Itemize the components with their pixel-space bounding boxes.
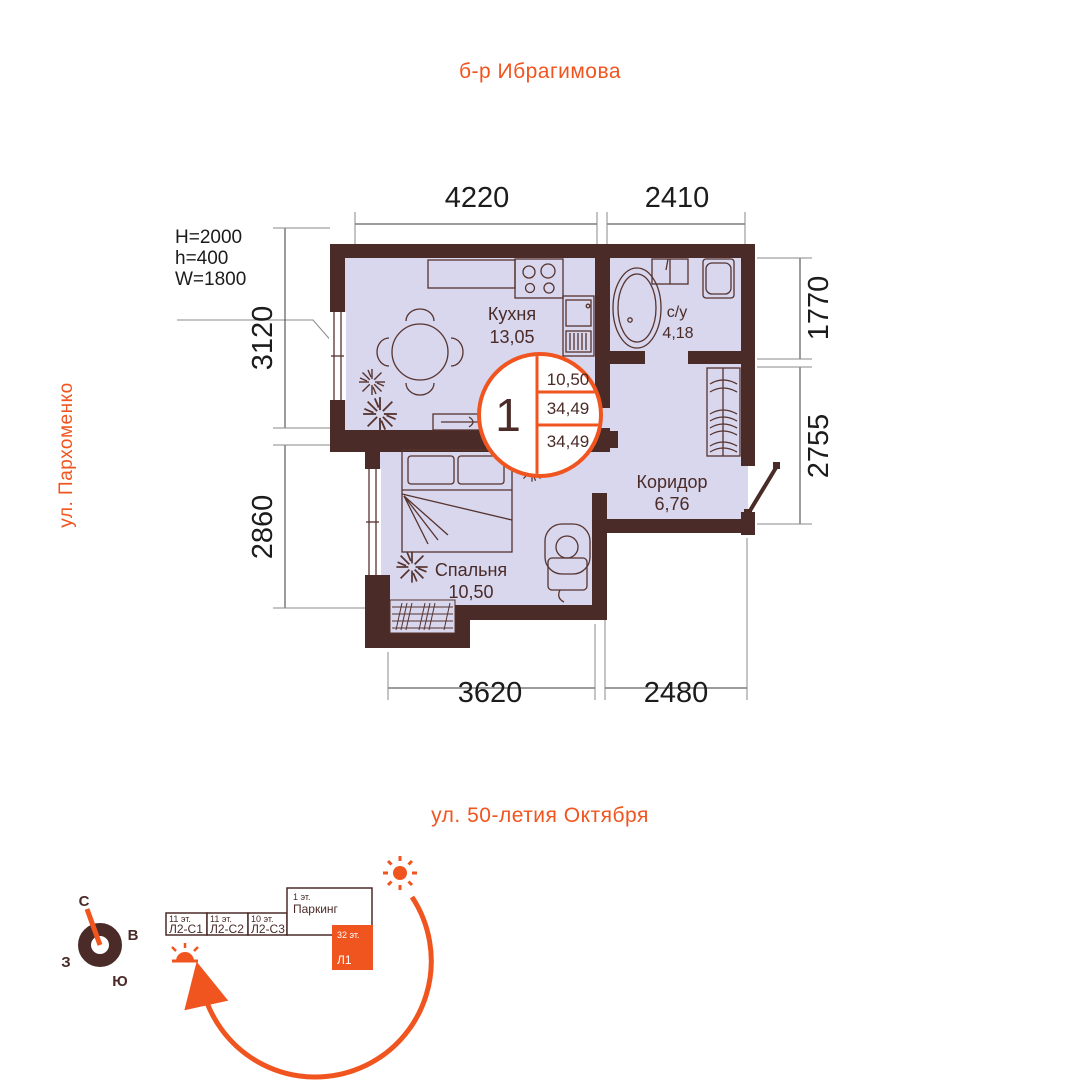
kitchen-window <box>329 312 346 400</box>
badge-total-area: 34,49 <box>547 399 590 418</box>
badge-living-area: 10,50 <box>547 370 590 389</box>
street-label-left: ул. Пархоменко <box>56 382 77 527</box>
building-scheme: 11 эт. Л2-С1 11 эт. Л2-С2 10 эт. Л2-С3 1… <box>166 888 373 970</box>
dim-left-1: 3120 <box>247 306 279 371</box>
compass-south: Ю <box>112 973 127 990</box>
bedroom-window <box>364 469 381 575</box>
dim-bottom-1: 3620 <box>458 677 523 709</box>
street-label-top: б-р Ибрагимова <box>459 60 621 83</box>
dim-bottom-2: 2480 <box>644 677 709 709</box>
kitchen-label: Кухня <box>488 304 536 324</box>
compass-east: В <box>128 927 139 944</box>
bedroom-area: 10,50 <box>448 582 493 602</box>
dim-right-2: 2755 <box>803 414 835 479</box>
corridor-area: 6,76 <box>654 494 689 514</box>
badge-room-count: 1 <box>495 389 521 441</box>
entrance-door <box>744 462 780 517</box>
kitchen-area: 13,05 <box>489 327 534 347</box>
current-building-floors: 32 эт. <box>337 930 360 940</box>
niche-hatch <box>390 600 455 633</box>
floorplan-page: б-р Ибрагимова ул. Пархоменко ул. 50-лет… <box>0 0 1080 1080</box>
dim-top-2: 2410 <box>645 182 710 214</box>
section-3-label: Л2-С3 <box>251 922 285 936</box>
section-2-label: Л2-С2 <box>210 922 244 936</box>
window-spec-w: W=1800 <box>175 269 246 290</box>
dim-left-2: 2860 <box>247 495 279 560</box>
bathroom-area: 4,18 <box>662 325 693 342</box>
compass-west: З <box>61 954 70 971</box>
sun-icon-west <box>172 943 198 961</box>
floorplan-canvas: б-р Ибрагимова ул. Пархоменко ул. 50-лет… <box>0 0 1080 1080</box>
parking-floors: 1 эт. <box>293 892 311 902</box>
badge-total-area-balcony: 34,49 <box>547 432 590 451</box>
window-spec-h: H=2000 <box>175 227 242 248</box>
bathroom-label: с/у <box>667 304 687 321</box>
compass-north: С <box>79 893 90 910</box>
compass: С В З Ю <box>61 893 138 990</box>
corridor-label: Коридор <box>636 472 707 492</box>
sun-icon-east <box>383 856 417 890</box>
apartment-badge: 1 10,50 34,49 34,49 <box>479 354 601 476</box>
current-building-label: Л1 <box>337 953 352 967</box>
window-spec-sill: h=400 <box>175 248 228 269</box>
section-1-label: Л2-С1 <box>169 922 203 936</box>
bedroom-label: Спальня <box>435 560 507 580</box>
dim-right-1: 1770 <box>803 276 835 341</box>
parking-label: Паркинг <box>293 902 339 916</box>
street-label-bottom: ул. 50-летия Октября <box>431 804 649 827</box>
dim-top-1: 4220 <box>445 182 510 214</box>
